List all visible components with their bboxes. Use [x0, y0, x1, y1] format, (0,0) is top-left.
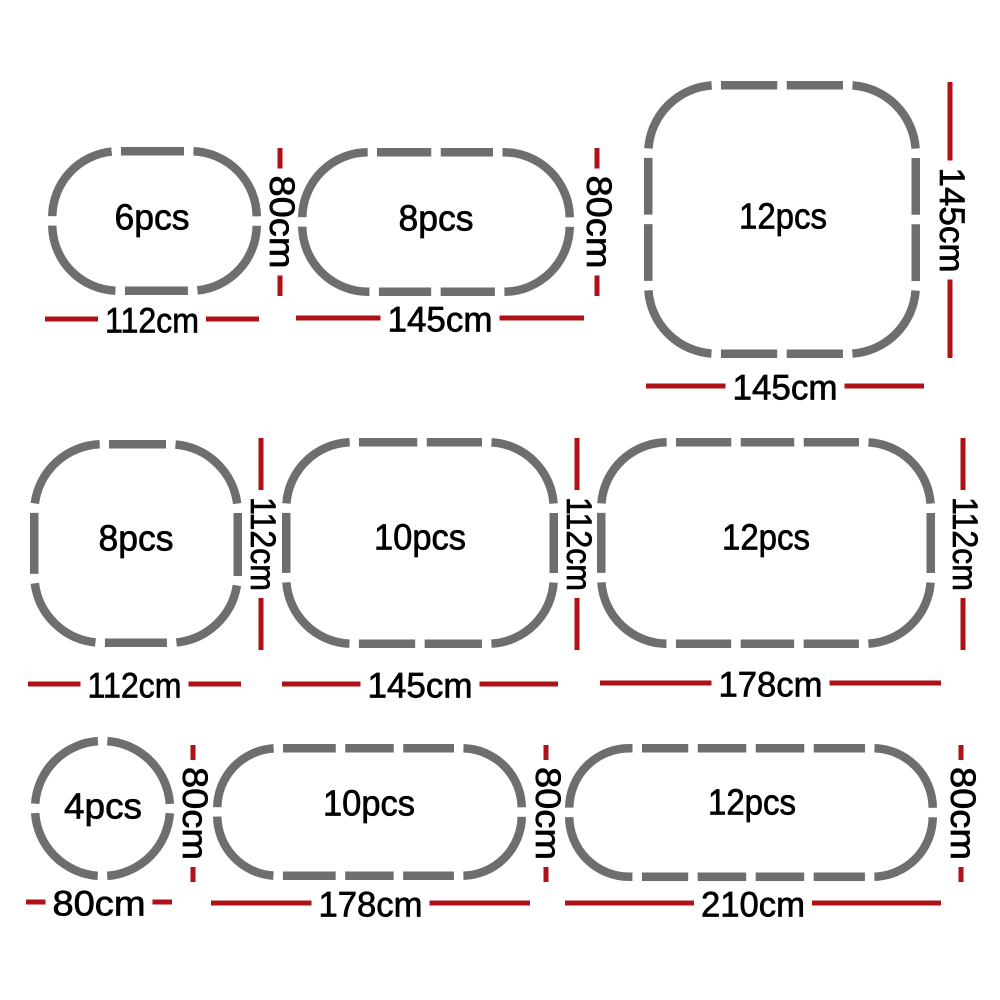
svg-text:80cm: 80cm — [579, 176, 618, 269]
svg-text:112cm: 112cm — [88, 667, 182, 706]
svg-text:178cm: 178cm — [319, 886, 423, 925]
svg-text:80cm: 80cm — [528, 767, 567, 860]
svg-text:12pcs: 12pcs — [739, 196, 827, 237]
svg-text:10pcs: 10pcs — [374, 517, 466, 558]
svg-text:80cm: 80cm — [53, 885, 146, 924]
svg-text:112cm: 112cm — [243, 497, 282, 591]
svg-text:112cm: 112cm — [945, 497, 984, 591]
svg-text:80cm: 80cm — [175, 767, 214, 860]
svg-text:80cm: 80cm — [262, 176, 301, 269]
svg-text:12pcs: 12pcs — [708, 782, 796, 823]
svg-text:178cm: 178cm — [719, 666, 823, 705]
svg-text:145cm: 145cm — [368, 667, 473, 706]
svg-text:8pcs: 8pcs — [399, 198, 474, 239]
svg-text:6pcs: 6pcs — [115, 197, 190, 238]
svg-text:80cm: 80cm — [943, 767, 982, 860]
svg-text:12pcs: 12pcs — [722, 517, 810, 558]
svg-text:10pcs: 10pcs — [323, 783, 415, 824]
svg-text:145cm: 145cm — [733, 369, 838, 408]
svg-text:112cm: 112cm — [559, 497, 598, 591]
svg-text:210cm: 210cm — [701, 886, 805, 925]
svg-text:8pcs: 8pcs — [99, 518, 174, 559]
svg-text:145cm: 145cm — [388, 301, 493, 340]
svg-text:4pcs: 4pcs — [64, 786, 142, 827]
svg-text:145cm: 145cm — [932, 168, 971, 273]
svg-text:112cm: 112cm — [105, 302, 199, 341]
